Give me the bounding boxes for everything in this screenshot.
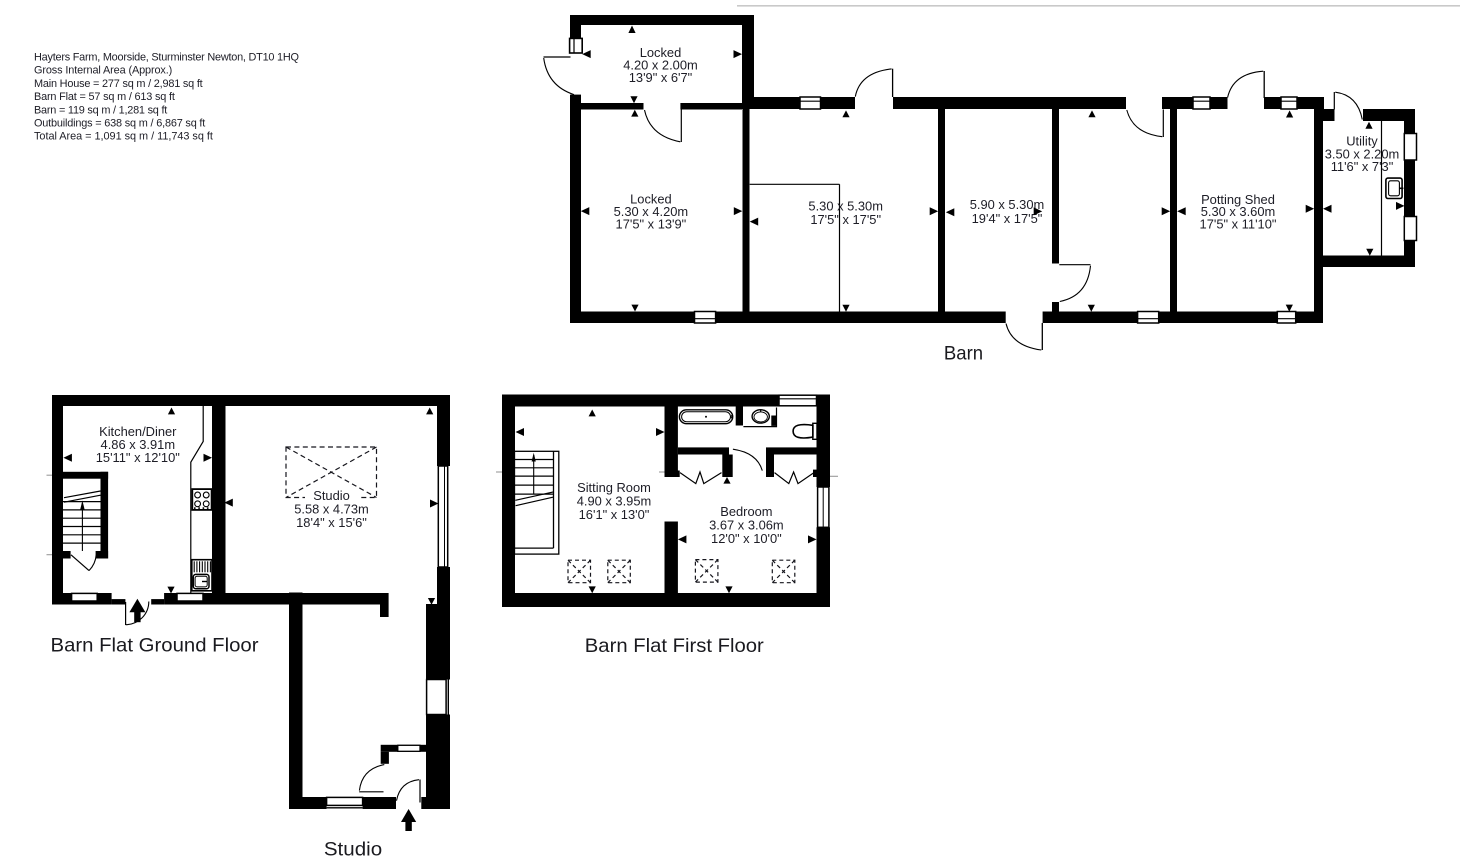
svg-text:17'5" x 17'5": 17'5" x 17'5" xyxy=(810,212,881,227)
svg-text:13'9" x 6'7": 13'9" x 6'7" xyxy=(629,70,693,85)
svg-text:12'0" x 10'0": 12'0" x 10'0" xyxy=(711,531,782,546)
svg-text:Main House = 277 sq m / 2,981: Main House = 277 sq m / 2,981 sq ft xyxy=(34,78,203,90)
svg-text:17'5" x 13'9": 17'5" x 13'9" xyxy=(616,217,687,232)
svg-text:Barn Flat = 57 sq m / 613 sq f: Barn Flat = 57 sq m / 613 sq ft xyxy=(34,91,175,103)
svg-text:Barn Flat First Floor: Barn Flat First Floor xyxy=(585,635,765,657)
svg-text:16'1" x 13'0": 16'1" x 13'0" xyxy=(579,507,650,522)
svg-text:15'11" x 12'10": 15'11" x 12'10" xyxy=(96,450,181,465)
svg-text:19'4" x 17'5": 19'4" x 17'5" xyxy=(972,211,1043,226)
svg-text:Barn: Barn xyxy=(944,343,983,365)
svg-text:Total Area = 1,091 sq m / 11,7: Total Area = 1,091 sq m / 11,743 sq ft xyxy=(34,131,213,143)
svg-text:Hayters Farm, Moorside, Sturmi: Hayters Farm, Moorside, Sturminster Newt… xyxy=(34,52,299,64)
svg-text:Barn Flat Ground Floor: Barn Flat Ground Floor xyxy=(51,635,260,657)
svg-text:Studio: Studio xyxy=(324,838,382,860)
svg-text:18'4" x 15'6": 18'4" x 15'6" xyxy=(296,515,367,530)
svg-text:Gross Internal Area (Approx.): Gross Internal Area (Approx.) xyxy=(34,65,172,77)
svg-text:5.90 x 5.30m: 5.90 x 5.30m xyxy=(970,197,1045,212)
svg-text:11'6" x 7'3": 11'6" x 7'3" xyxy=(1331,159,1394,174)
svg-text:Outbuildings = 638 sq m / 6,86: Outbuildings = 638 sq m / 6,867 sq ft xyxy=(34,118,205,130)
svg-text:Barn = 119 sq m / 1,281 sq ft: Barn = 119 sq m / 1,281 sq ft xyxy=(34,104,167,116)
svg-text:17'5" x 11'10": 17'5" x 11'10" xyxy=(1200,216,1277,231)
